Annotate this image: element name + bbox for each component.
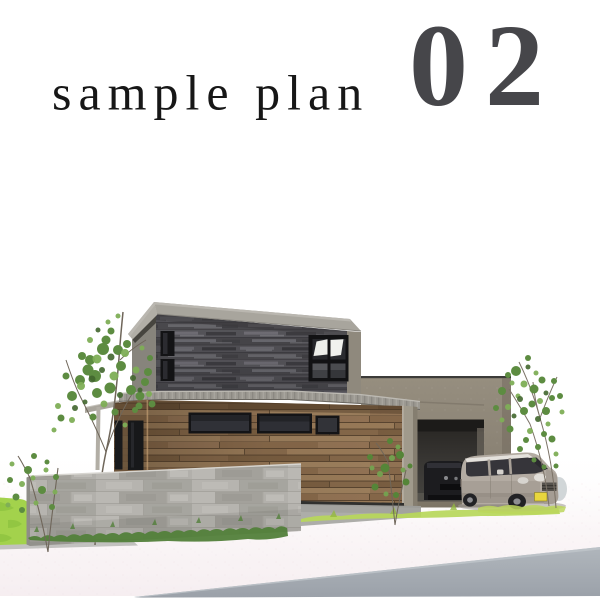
svg-text:02: 02 xyxy=(409,0,561,131)
svg-text:sample plan: sample plan xyxy=(52,65,369,121)
